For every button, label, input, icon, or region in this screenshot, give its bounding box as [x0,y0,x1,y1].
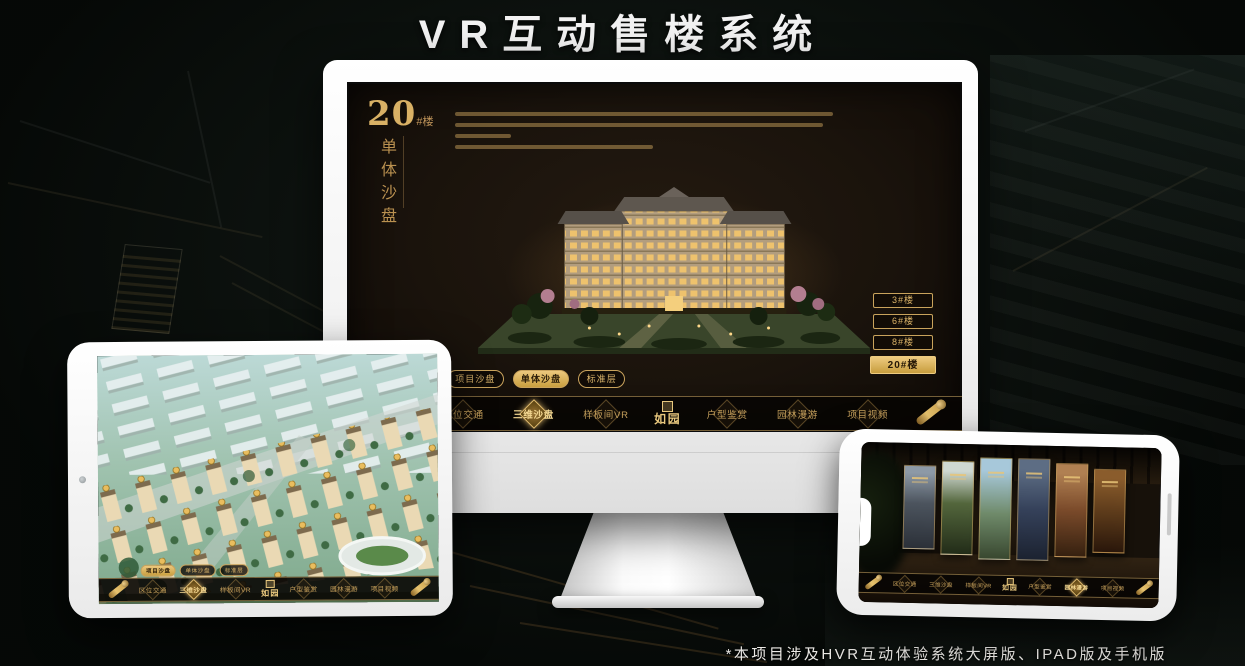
phone-nav-project-video[interactable]: 项目视频 [1099,583,1127,592]
phone-notch [860,498,872,546]
scene-panel-garden[interactable] [940,461,974,556]
heading-divider [403,136,404,208]
nav-item-showroom-vr[interactable]: 样板间VR [579,407,632,421]
building-number: 20 [367,94,416,134]
building-selector: 3#楼 6#楼 8#楼 20#楼 [870,290,936,377]
description-text-line [455,112,833,116]
bg-map-line [187,71,222,228]
bg-map-line [8,182,263,238]
building-button-3[interactable]: 3#楼 [873,293,933,308]
scroll-icon[interactable] [107,581,128,599]
scroll-icon[interactable] [409,579,430,597]
description-text-line [455,134,511,138]
building-3d-render [470,156,878,366]
brand-logo: 如园 [261,580,280,598]
building-button-8[interactable]: 8#楼 [873,335,933,350]
scroll-icon[interactable] [915,400,945,426]
bg-plaque [111,244,182,334]
monitor-stand-base [552,596,764,608]
tab-project-sandbox[interactable]: 项目沙盘 [447,370,504,388]
scene-panel-strip [901,443,1128,576]
nav-item-garden-roam[interactable]: 园林漫游 [773,407,822,421]
scene-panel-tower-night[interactable] [1016,458,1050,561]
tablet-tab-project-sandbox[interactable]: 项目沙盘 [141,565,177,577]
brand-logo: 如园 [1002,578,1018,594]
phone-device: 区位交通 三维沙盘 样板间VR 如园 户型鉴赏 [836,428,1180,621]
phone-nav-3d-sandbox[interactable]: 三维沙盘 [927,580,955,589]
phone-side-button [1167,493,1172,535]
heading-vertical-calligraphy: 单体沙盘 [375,138,399,230]
tablet-device: 项目沙盘 单体沙盘 标准层 区位交通 三维沙盘 样板间VR [67,340,453,619]
building-button-20[interactable]: 20#楼 [870,356,936,374]
tablet-nav-3d-sandbox[interactable]: 三维沙盘 [177,584,210,594]
scene-panel-building-day[interactable] [978,457,1012,560]
description-text-line [455,145,653,149]
phone-nav-garden-roam[interactable]: 园林漫游 [1062,583,1090,592]
scene-panel-autumn[interactable] [1054,463,1088,558]
sandbox-sub-tabs: 项目沙盘 单体沙盘 标准层 [447,370,625,388]
bg-city-photo [990,55,1245,465]
tablet-nav-project-video[interactable]: 项目视频 [368,583,401,593]
scroll-icon[interactable] [864,575,882,590]
seal-icon [662,401,673,412]
phone-nav-location-traffic[interactable]: 区位交通 [891,579,919,588]
brand-logo: 如园 [654,401,681,426]
page-title: VR互动售楼系统 [0,2,1245,60]
nav-item-project-video[interactable]: 项目视频 [843,407,892,421]
tablet-nav-location-traffic[interactable]: 区位交通 [136,585,169,595]
scroll-icon[interactable] [1135,581,1153,596]
phone-nav-showroom-vr[interactable]: 样板间VR [963,581,994,590]
bg-map-line [20,120,211,184]
building-number-suffix: #楼 [416,116,433,128]
tablet-nav-garden-roam[interactable]: 园林漫游 [327,583,360,593]
building-button-6[interactable]: 6#楼 [873,314,933,329]
scene-panel-interior[interactable] [1092,469,1126,554]
tablet-nav-showroom-vr[interactable]: 样板间VR [217,584,253,594]
tablet-camera-icon [79,476,86,483]
tab-standard-floor[interactable]: 标准层 [578,370,625,388]
nav-item-3d-sandbox[interactable]: 三维沙盘 [509,407,558,421]
tablet-sub-tabs: 项目沙盘 单体沙盘 标准层 [141,564,249,576]
tablet-tab-standard-floor[interactable]: 标准层 [219,564,248,576]
tablet-nav-floorplan-gallery[interactable]: 户型鉴赏 [287,584,320,594]
footnote-text: *本项目涉及HVR互动体验系统大屏版、IPAD版及手机版 [726,643,1167,664]
tablet-tab-single-sandbox[interactable]: 单体沙盘 [180,565,216,577]
monitor-stand [560,513,757,599]
tab-single-sandbox[interactable]: 单体沙盘 [513,370,570,388]
tablet-nav-bar: 区位交通 三维沙盘 样板间VR 如园 户型鉴赏 [99,576,439,602]
scene-panel-courtyard[interactable] [902,465,936,550]
section-heading: 20#楼 单体沙盘 [367,94,433,230]
description-text-line [455,123,823,127]
phone-screen: 区位交通 三维沙盘 样板间VR 如园 户型鉴赏 [858,442,1161,608]
poster: VR互动售楼系统 20#楼 单体沙盘 [0,0,1245,666]
seal-icon [266,580,274,588]
nav-item-floorplan-gallery[interactable]: 户型鉴赏 [703,407,752,421]
tablet-screen: 项目沙盘 单体沙盘 标准层 区位交通 三维沙盘 样板间VR [97,354,439,604]
phone-nav-floorplan-gallery[interactable]: 户型鉴赏 [1026,582,1054,591]
